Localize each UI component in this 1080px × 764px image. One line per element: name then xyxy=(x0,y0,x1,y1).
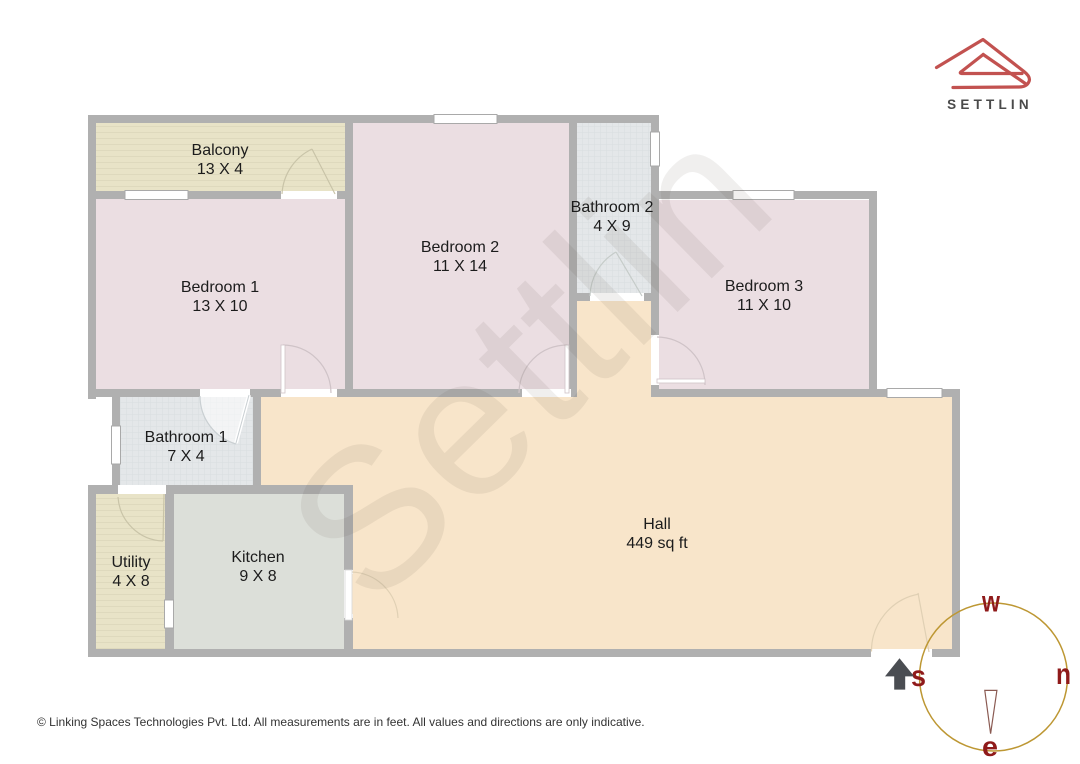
svg-text:Bathroom 1: Bathroom 1 xyxy=(145,429,228,446)
svg-text:SETTLIN: SETTLIN xyxy=(947,97,1033,112)
svg-text:Bathroom 2: Bathroom 2 xyxy=(571,199,654,216)
svg-text:4 X 8: 4 X 8 xyxy=(112,573,149,590)
svg-text:4 X 9: 4 X 9 xyxy=(593,218,630,235)
svg-text:© Linking Spaces Technologies: © Linking Spaces Technologies Pvt. Ltd. … xyxy=(37,715,645,729)
svg-text:Bedroom 3: Bedroom 3 xyxy=(725,278,803,295)
svg-text:13 X 10: 13 X 10 xyxy=(192,298,247,315)
svg-text:9 X 8: 9 X 8 xyxy=(239,568,276,585)
svg-text:Balcony: Balcony xyxy=(192,142,249,159)
svg-text:Hall: Hall xyxy=(643,516,671,533)
svg-text:w: w xyxy=(981,586,1000,619)
svg-text:s: s xyxy=(911,660,926,693)
svg-text:e: e xyxy=(982,731,998,762)
svg-text:449 sq ft: 449 sq ft xyxy=(626,535,688,552)
svg-text:n: n xyxy=(1056,658,1071,691)
svg-text:13 X 4: 13 X 4 xyxy=(197,161,243,178)
svg-text:7 X 4: 7 X 4 xyxy=(167,448,204,465)
svg-text:Bedroom 2: Bedroom 2 xyxy=(421,239,499,256)
svg-text:Utility: Utility xyxy=(111,554,150,571)
svg-text:11 X 10: 11 X 10 xyxy=(737,297,791,314)
svg-text:11 X 14: 11 X 14 xyxy=(433,258,487,275)
svg-text:Kitchen: Kitchen xyxy=(231,549,284,566)
svg-text:Bedroom 1: Bedroom 1 xyxy=(181,279,259,296)
